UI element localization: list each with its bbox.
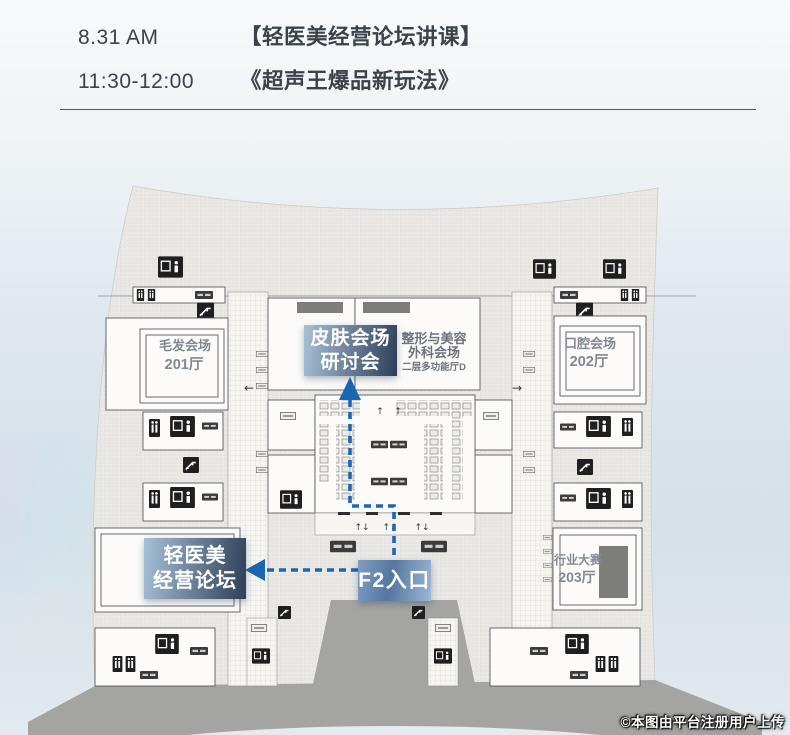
stage-block bbox=[363, 302, 410, 313]
room-chip bbox=[483, 412, 498, 419]
escalator-icon bbox=[278, 606, 291, 619]
booth-column bbox=[336, 424, 355, 500]
room-chip bbox=[560, 291, 578, 299]
stair-strip-left bbox=[247, 618, 277, 686]
floor-plan-map: 毛发会场 201厅 口腔会场 202厅 整形与美容 外科会场 二层多功能厅D bbox=[0, 150, 790, 735]
hall-202-room: 202厅 bbox=[570, 353, 609, 370]
restroom-icon bbox=[137, 289, 144, 301]
restroom-icon bbox=[148, 289, 155, 301]
elevator-icon bbox=[565, 634, 589, 654]
room-chip bbox=[330, 541, 356, 553]
stair-strip-right bbox=[428, 618, 458, 686]
booth-column bbox=[424, 424, 443, 500]
escalator-icon bbox=[197, 303, 214, 320]
stage-block bbox=[297, 302, 343, 313]
room-chip bbox=[202, 493, 218, 500]
elevator-icon bbox=[170, 416, 195, 437]
restroom-icon bbox=[149, 419, 160, 437]
booth-chip bbox=[371, 441, 388, 449]
hall-d-line1: 整形与美容 bbox=[400, 331, 466, 346]
escalator-icon bbox=[183, 457, 199, 473]
hall-d-line2: 外科会场 bbox=[407, 345, 460, 360]
badge-entrance-f2: F2入口 bbox=[358, 560, 431, 601]
elevator-icon bbox=[586, 416, 611, 437]
hall-203-name: 行业大赛 bbox=[553, 552, 603, 567]
badge-forum: 轻医美 经营论坛 bbox=[144, 538, 246, 599]
badge-forum-line2: 经营论坛 bbox=[153, 569, 237, 593]
entrance-ramp bbox=[302, 600, 486, 735]
booth-chip bbox=[390, 478, 407, 486]
right-arrow: → bbox=[512, 381, 522, 395]
room-chip bbox=[570, 671, 588, 679]
elevator-icon bbox=[252, 648, 270, 663]
restroom-icon bbox=[609, 656, 619, 672]
schedule-time: 11:30-12:00 bbox=[78, 70, 240, 94]
hall-202-name: 口腔会场 bbox=[564, 336, 616, 351]
elevator-icon bbox=[434, 648, 452, 663]
hall-201: 毛发会场 201厅 bbox=[106, 318, 228, 410]
room-chip bbox=[280, 412, 295, 419]
elevator-icon bbox=[280, 490, 302, 509]
room-chip bbox=[140, 671, 158, 679]
event-map-page: { "header": { "date": "8.31 AM", "sessio… bbox=[0, 0, 790, 735]
stage-block bbox=[599, 546, 628, 598]
elevator-icon bbox=[603, 259, 626, 278]
room-chip bbox=[190, 647, 208, 655]
restroom-icon bbox=[596, 656, 606, 672]
booth-chip bbox=[390, 441, 407, 449]
watermark: ©本图由平台注册用户上传 bbox=[621, 711, 785, 731]
schedule-row: 11:30-12:00 《超声王爆品新玩法》 bbox=[0, 64, 790, 95]
hall-203-room: 203厅 bbox=[558, 569, 595, 585]
booth-row bbox=[318, 400, 360, 416]
booth-column bbox=[452, 402, 463, 500]
badge-forum-line1: 轻医美 bbox=[164, 544, 227, 568]
hall-203: 行业大赛 203厅 bbox=[553, 528, 642, 610]
schedule-session-tag: 【轻医美经营论坛讲课】 bbox=[240, 20, 482, 51]
restroom-icon bbox=[622, 418, 633, 436]
schedule-row: 8.31 AM 【轻医美经营论坛讲课】 bbox=[0, 20, 790, 51]
restroom-icon bbox=[126, 656, 136, 672]
restroom-icon bbox=[622, 490, 633, 508]
room-chip bbox=[530, 647, 548, 655]
hall-201-name: 毛发会场 bbox=[159, 338, 211, 353]
room-chip bbox=[421, 541, 447, 553]
badge-skin-line2: 研讨会 bbox=[320, 351, 380, 374]
room-chip bbox=[560, 494, 576, 501]
room-chip bbox=[202, 422, 218, 429]
elevator-icon bbox=[155, 634, 179, 654]
schedule-date: 8.31 AM bbox=[78, 26, 240, 50]
floor-plan-svg: 毛发会场 201厅 口腔会场 202厅 整形与美容 外科会场 二层多功能厅D bbox=[0, 150, 790, 735]
hall-201-room: 201厅 bbox=[165, 356, 204, 373]
badge-skin-line1: 皮肤会场 bbox=[310, 327, 390, 350]
updown-arrow: ↑↓ bbox=[414, 523, 429, 533]
schedule-header: 8.31 AM 【轻医美经营论坛讲课】 11:30-12:00 《超声王爆品新玩… bbox=[0, 0, 790, 150]
escalator-icon bbox=[577, 459, 593, 475]
hall-d-line3: 二层多功能厅D bbox=[402, 361, 466, 373]
restroom-icon bbox=[632, 289, 639, 301]
elevator-icon bbox=[586, 488, 611, 509]
booth-chip bbox=[371, 478, 388, 486]
updown-arrow: ↑↓ bbox=[354, 523, 369, 533]
room-chip bbox=[195, 291, 213, 299]
left-arrow: ← bbox=[244, 381, 254, 395]
restroom-icon bbox=[149, 490, 160, 508]
elevator-icon bbox=[158, 256, 183, 277]
up-arrow: ↑ bbox=[376, 407, 384, 417]
badge-entrance-label: F2入口 bbox=[358, 568, 431, 594]
badge-skin-venue: 皮肤会场 研讨会 bbox=[304, 325, 397, 376]
booth-column bbox=[318, 424, 329, 482]
elevator-icon bbox=[170, 487, 195, 508]
elevator-icon bbox=[533, 259, 556, 278]
schedule-session-title: 《超声王爆品新玩法》 bbox=[240, 64, 460, 95]
restroom-icon bbox=[621, 289, 628, 301]
escalator-icon bbox=[412, 606, 425, 619]
header-divider bbox=[60, 109, 756, 110]
hall-202: 口腔会场 202厅 bbox=[554, 316, 646, 404]
restroom-icon bbox=[113, 656, 123, 672]
room-chip bbox=[560, 423, 576, 430]
up-arrow: ↑ bbox=[394, 407, 402, 417]
